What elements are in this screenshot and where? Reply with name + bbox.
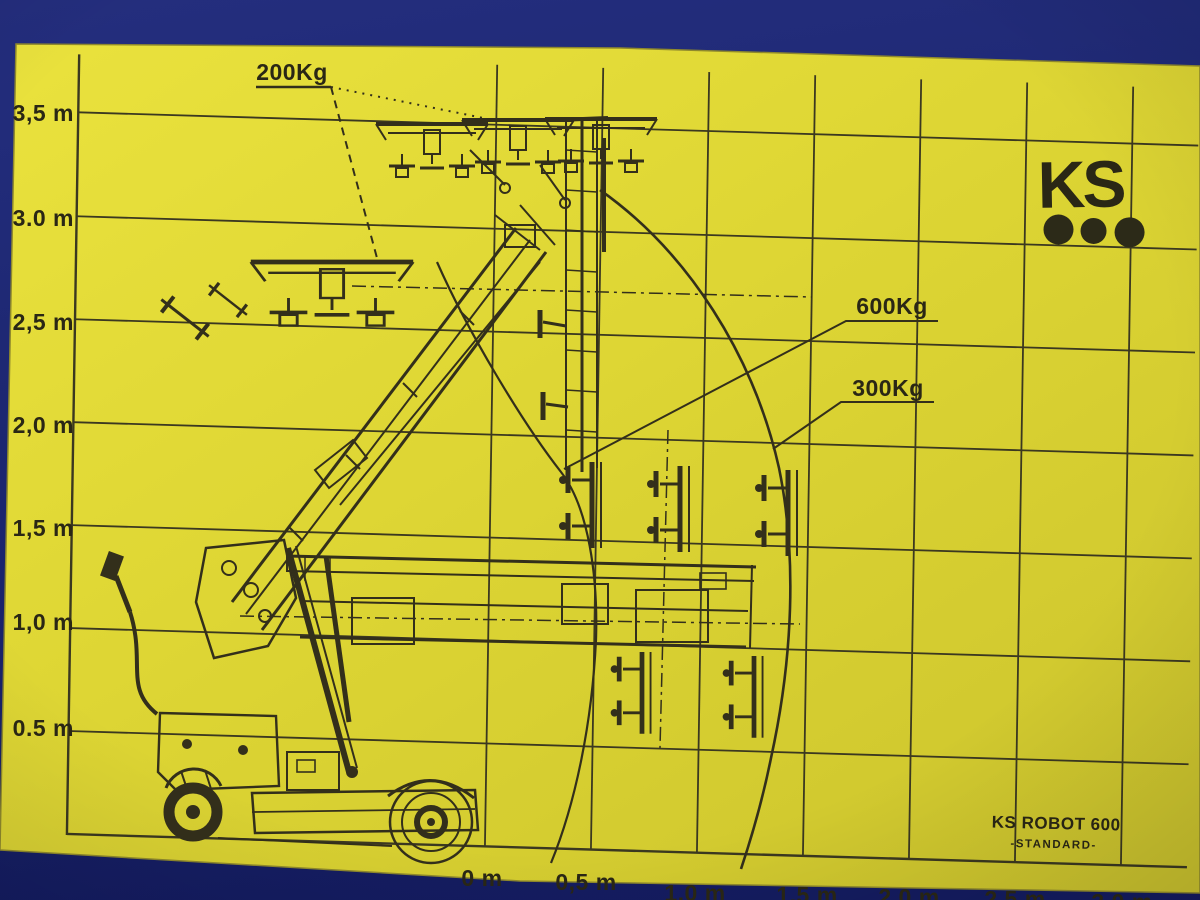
load-diagram-svg: 200Kg 600Kg 300Kg 3,5 m 3.0 m 2,5 m 2,0 … (0, 0, 1200, 900)
photo-of-load-diagram: 200Kg 600Kg 300Kg 3,5 m 3.0 m 2,5 m 2,0 … (0, 0, 1200, 900)
photo-vignette (0, 0, 1200, 900)
